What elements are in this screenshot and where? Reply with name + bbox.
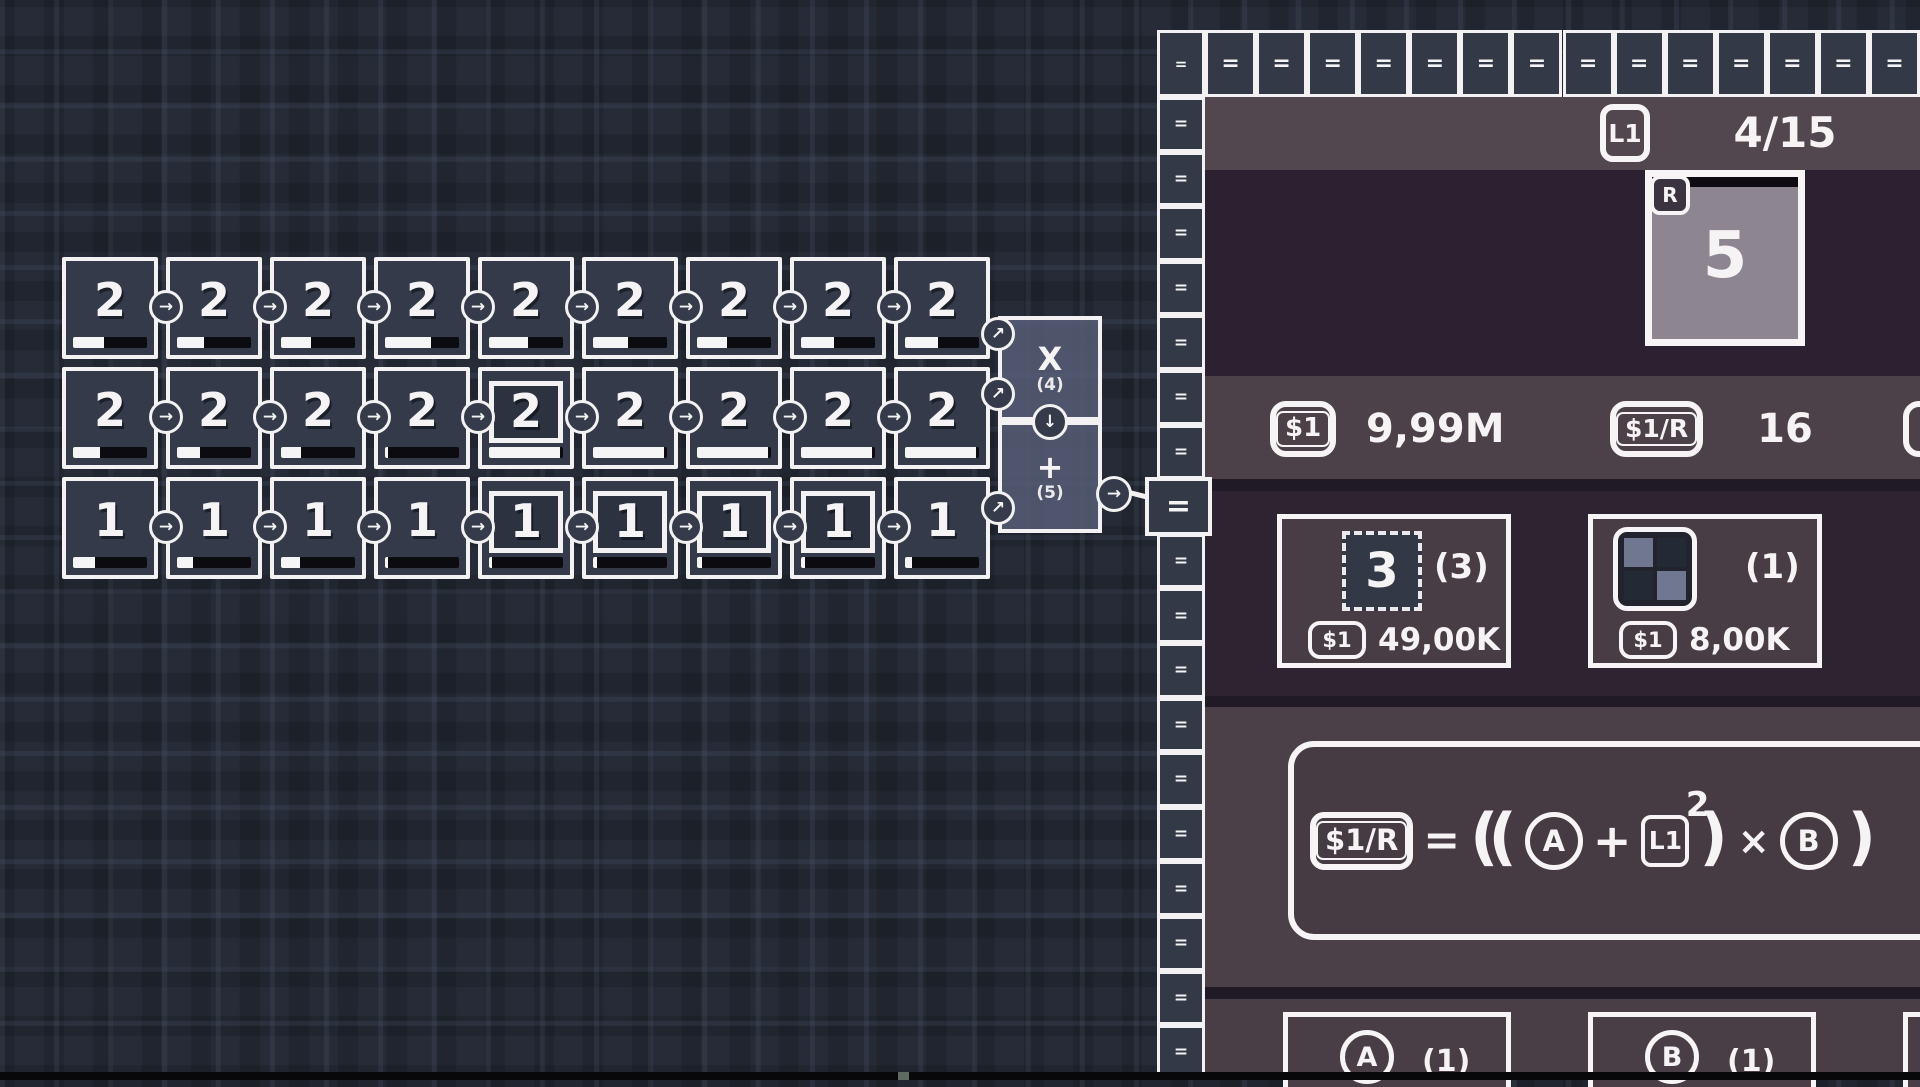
separator bbox=[1205, 696, 1920, 707]
cell-progress-fill bbox=[281, 337, 311, 348]
grid-cell-value: 2 bbox=[926, 387, 958, 433]
level-badge-label: L1 bbox=[1608, 121, 1641, 146]
cell-progress-fill bbox=[385, 447, 388, 458]
cell-progress-bar bbox=[177, 447, 251, 458]
cell-progress-fill bbox=[801, 337, 834, 348]
grid-cell-value: 2 bbox=[822, 277, 854, 323]
frame-tile: = bbox=[1511, 30, 1562, 97]
money-currency-badge: $1 bbox=[1270, 401, 1336, 457]
grid-icon-square-dark bbox=[1624, 571, 1653, 600]
frame-tile: = bbox=[1157, 971, 1205, 1026]
frame-tile: = bbox=[1665, 30, 1716, 97]
frame-tile: = bbox=[1205, 30, 1256, 97]
grid-cell-value: 1 bbox=[198, 497, 230, 543]
grid-cell-value: 2 bbox=[406, 387, 438, 433]
shop-item-grid-expansion[interactable]: (1) $1 8,00K bbox=[1588, 514, 1822, 668]
right-arrow-connector-icon: → bbox=[877, 400, 911, 434]
game-screen: { "colors": { "canvas_bg": "#262b37", "c… bbox=[0, 0, 1920, 1080]
right-arrow-connector-icon: → bbox=[773, 290, 807, 324]
formula-level-term: L1 2 bbox=[1641, 815, 1689, 867]
right-arrow-connector-icon: → bbox=[253, 510, 287, 544]
grid-icon-square-light bbox=[1624, 538, 1653, 567]
cell-progress-fill bbox=[801, 447, 872, 458]
grid-cell-value-selected: 1 bbox=[697, 491, 771, 553]
right-arrow-connector-icon: → bbox=[357, 290, 391, 324]
cell-progress-bar bbox=[697, 557, 771, 568]
formula-variable-b-icon: B bbox=[1780, 812, 1838, 870]
formula-lhs-badge: $1/R bbox=[1310, 812, 1413, 870]
frame-tile: = bbox=[1157, 30, 1205, 97]
formula-equals: = bbox=[1423, 815, 1460, 866]
clipped-currency-badge bbox=[1903, 401, 1920, 457]
cell-progress-bar bbox=[697, 337, 771, 348]
up-right-arrow-connector-icon: ↗ bbox=[981, 377, 1015, 411]
right-arrow-connector-icon: → bbox=[669, 510, 703, 544]
cell-progress-fill bbox=[73, 337, 104, 348]
cell-progress-bar bbox=[489, 447, 563, 458]
cell-progress-bar bbox=[593, 337, 667, 348]
grid-cell-value: 2 bbox=[510, 277, 542, 323]
frame-tile: = bbox=[1256, 30, 1307, 97]
frame-tile: = bbox=[1460, 30, 1511, 97]
frame-tile: = bbox=[1614, 30, 1665, 97]
cell-progress-fill bbox=[905, 447, 976, 458]
cell-progress-bar bbox=[385, 557, 459, 568]
shop-item-number-3[interactable]: 3 (3) $1 49,00K bbox=[1277, 514, 1511, 668]
cost-currency-badge: $1 bbox=[1619, 621, 1677, 659]
right-arrow-connector-icon: → bbox=[461, 290, 495, 324]
grid-cell-value: 2 bbox=[94, 387, 126, 433]
grid-cell-value: 2 bbox=[822, 387, 854, 433]
grid-cell-value: 2 bbox=[198, 387, 230, 433]
rate-amount: 16 bbox=[1735, 401, 1835, 457]
cell-progress-bar bbox=[593, 557, 667, 568]
cell-progress-bar bbox=[905, 337, 979, 348]
cell-progress-fill bbox=[177, 337, 204, 348]
right-arrow-connector-icon: → bbox=[877, 510, 911, 544]
cell-progress-bar bbox=[281, 557, 355, 568]
grid-cell-value: 2 bbox=[614, 277, 646, 323]
cell-progress-bar bbox=[385, 337, 459, 348]
frame-tile: = bbox=[1818, 30, 1869, 97]
bottom-edge-bar bbox=[0, 1072, 1920, 1080]
frame-tile: = bbox=[1157, 261, 1205, 316]
frame-tile: = bbox=[1157, 588, 1205, 643]
formula-close-paren: ) bbox=[1699, 806, 1727, 868]
right-arrow-connector-icon: → bbox=[253, 290, 287, 324]
grid-cell-value-selected: 1 bbox=[489, 491, 563, 553]
formula-lhs-label: $1/R bbox=[1316, 821, 1407, 860]
money-currency-label: $1 bbox=[1276, 411, 1330, 447]
right-arrow-connector-icon: → bbox=[877, 290, 911, 324]
grid-cell-value: 2 bbox=[614, 387, 646, 433]
formula-clipped-paren: ) bbox=[1848, 806, 1876, 868]
cell-progress-fill bbox=[697, 337, 727, 348]
cost-currency-label: $1 bbox=[1322, 628, 1351, 652]
cell-progress-fill bbox=[697, 557, 702, 568]
cell-progress-fill bbox=[73, 447, 100, 458]
cell-progress-bar bbox=[489, 557, 563, 568]
frame-tile: = bbox=[1409, 30, 1460, 97]
add-symbol: + bbox=[1037, 451, 1064, 483]
cell-progress-fill bbox=[593, 337, 628, 348]
cell-progress-fill bbox=[697, 447, 768, 458]
cell-progress-bar bbox=[593, 447, 667, 458]
cell-progress-bar bbox=[801, 337, 875, 348]
cell-progress-bar bbox=[177, 557, 251, 568]
cell-progress-fill bbox=[489, 337, 528, 348]
formula-open-parens: (( bbox=[1470, 806, 1507, 868]
separator bbox=[1205, 479, 1920, 491]
frame-tile: = bbox=[1157, 916, 1205, 971]
cell-progress-fill bbox=[489, 557, 492, 568]
cell-progress-fill bbox=[593, 447, 664, 458]
frame-tile: = bbox=[1157, 206, 1205, 261]
right-arrow-connector-icon: → bbox=[565, 290, 599, 324]
right-arrow-connector-icon: → bbox=[149, 400, 183, 434]
cell-progress-fill bbox=[177, 557, 193, 568]
bottom-edge-marker bbox=[898, 1072, 909, 1080]
frame-tile: = bbox=[1358, 30, 1409, 97]
right-arrow-connector-icon: → bbox=[773, 510, 807, 544]
frame-tile: = bbox=[1157, 315, 1205, 370]
grid-cell-value: 2 bbox=[198, 277, 230, 323]
frame-tile: = bbox=[1157, 534, 1205, 589]
formula-variable-a-icon: A bbox=[1525, 812, 1583, 870]
shop-item-cost: 8,00K bbox=[1689, 621, 1790, 659]
up-right-arrow-connector-icon: ↗ bbox=[981, 317, 1015, 351]
reward-corner-badge: R bbox=[1650, 175, 1690, 215]
shop-item-owned-count: (1) bbox=[1745, 547, 1800, 587]
cell-progress-bar bbox=[385, 447, 459, 458]
right-arrow-connector-icon: → bbox=[669, 400, 703, 434]
formula-level-badge: L1 bbox=[1641, 815, 1689, 867]
grid-cell-value: 2 bbox=[406, 277, 438, 323]
grid-cell-value: 1 bbox=[94, 497, 126, 543]
right-arrow-connector-icon: → bbox=[461, 510, 495, 544]
shop-item-owned-count: (3) bbox=[1434, 547, 1489, 587]
cell-progress-bar bbox=[177, 337, 251, 348]
grid-cell-value: 2 bbox=[94, 277, 126, 323]
right-arrow-connector-icon: → bbox=[357, 510, 391, 544]
right-arrow-connector-icon: → bbox=[461, 400, 495, 434]
cell-progress-bar bbox=[905, 557, 979, 568]
cell-progress-fill bbox=[281, 557, 300, 568]
grid-cell-value-selected: 2 bbox=[489, 381, 563, 443]
cell-progress-fill bbox=[801, 557, 805, 568]
grid-cell-value-selected: 1 bbox=[593, 491, 667, 553]
rate-currency-badge: $1/R bbox=[1610, 401, 1703, 457]
cost-currency-label: $1 bbox=[1633, 628, 1662, 652]
cell-progress-bar bbox=[801, 557, 875, 568]
right-arrow-connector-icon: → bbox=[565, 510, 599, 544]
grid-cell-value: 2 bbox=[718, 277, 750, 323]
cell-progress-fill bbox=[385, 337, 431, 348]
add-count: (5) bbox=[1036, 483, 1063, 503]
multiply-symbol: X bbox=[1038, 343, 1063, 375]
grid-cell-value: 1 bbox=[926, 497, 958, 543]
right-arrow-output-connector-icon: → bbox=[1096, 476, 1132, 512]
cell-progress-fill bbox=[905, 337, 938, 348]
cell-progress-bar bbox=[73, 557, 147, 568]
grid-cell-value: 1 bbox=[302, 497, 334, 543]
down-arrow-connector-icon: ↓ bbox=[1032, 404, 1068, 440]
frame-tile: = bbox=[1157, 861, 1205, 916]
up-right-arrow-connector-icon: ↗ bbox=[981, 491, 1015, 525]
frame-tile: = bbox=[1307, 30, 1358, 97]
reward-section bbox=[1205, 170, 1920, 376]
grid-cell[interactable]: 1 bbox=[62, 477, 158, 579]
frame-tile: = bbox=[1157, 97, 1205, 152]
grid-2x2-icon bbox=[1613, 527, 1697, 611]
rate-formula-box: $1/R = (( A + L1 2 ) × B ) bbox=[1288, 741, 1920, 940]
level-progress-counter: 4/15 bbox=[1700, 104, 1870, 162]
cell-progress-bar bbox=[905, 447, 979, 458]
rate-currency-label: $1/R bbox=[1616, 412, 1697, 447]
grid-cell[interactable]: 2 bbox=[62, 367, 158, 469]
cell-progress-fill bbox=[73, 557, 95, 568]
right-arrow-connector-icon: → bbox=[669, 290, 703, 324]
level-badge: L1 bbox=[1600, 104, 1650, 162]
cell-progress-fill bbox=[489, 447, 560, 458]
formula-plus: + bbox=[1593, 814, 1632, 868]
multiply-count: (4) bbox=[1036, 375, 1063, 395]
frame-tile: = bbox=[1157, 807, 1205, 862]
number-3-tile: 3 bbox=[1342, 531, 1422, 611]
frame-tile: = bbox=[1157, 370, 1205, 425]
frame-tile: = bbox=[1157, 425, 1205, 480]
machine-grid: 2→2→2→2→2→2→2→2→22→2→2→2→2→2→2→2→21→1→1→… bbox=[0, 0, 1160, 1080]
right-arrow-connector-icon: → bbox=[149, 290, 183, 324]
right-arrow-connector-icon: → bbox=[565, 400, 599, 434]
grid-cell-value: 2 bbox=[302, 387, 334, 433]
frame-tile: = bbox=[1157, 643, 1205, 698]
frame-tile: = bbox=[1157, 152, 1205, 207]
cell-progress-bar bbox=[73, 447, 147, 458]
right-arrow-connector-icon: → bbox=[357, 400, 391, 434]
cell-progress-bar bbox=[801, 447, 875, 458]
frame-tile: = bbox=[1869, 30, 1920, 97]
cost-currency-badge: $1 bbox=[1308, 621, 1366, 659]
cell-progress-fill bbox=[593, 557, 597, 568]
grid-icon-square-dark bbox=[1657, 538, 1686, 567]
grid-cell-value-selected: 1 bbox=[801, 491, 875, 553]
cell-progress-bar bbox=[281, 447, 355, 458]
grid-cell-value: 2 bbox=[302, 277, 334, 323]
frame-tile: = bbox=[1157, 752, 1205, 807]
cell-progress-bar bbox=[281, 337, 355, 348]
cell-progress-bar bbox=[489, 337, 563, 348]
shop-item-cost: 49,00K bbox=[1378, 621, 1500, 659]
grid-cell[interactable]: 2 bbox=[62, 257, 158, 359]
frame-tile: = bbox=[1563, 30, 1614, 97]
reward-card-value: 5 bbox=[1652, 219, 1798, 293]
frame-tile: = bbox=[1157, 698, 1205, 753]
grid-cell-value: 2 bbox=[718, 387, 750, 433]
grid-cell-value: 1 bbox=[406, 497, 438, 543]
frame-tile: = bbox=[1767, 30, 1818, 97]
grid-icon-square-light bbox=[1657, 571, 1686, 600]
cell-progress-fill bbox=[281, 447, 301, 458]
cell-progress-fill bbox=[385, 557, 388, 568]
formula-times: × bbox=[1738, 819, 1770, 863]
right-arrow-connector-icon: → bbox=[773, 400, 807, 434]
right-arrow-connector-icon: → bbox=[253, 400, 287, 434]
separator bbox=[1205, 987, 1920, 999]
frame-tile: = bbox=[1716, 30, 1767, 97]
cell-progress-fill bbox=[905, 557, 912, 568]
reward-card[interactable]: R 5 bbox=[1645, 170, 1805, 346]
grid-cell-value: 2 bbox=[926, 277, 958, 323]
right-arrow-connector-icon: → bbox=[149, 510, 183, 544]
cell-progress-bar bbox=[73, 337, 147, 348]
money-amount: 9,99M bbox=[1366, 401, 1505, 457]
cell-progress-fill bbox=[177, 447, 200, 458]
cell-progress-bar bbox=[697, 447, 771, 458]
